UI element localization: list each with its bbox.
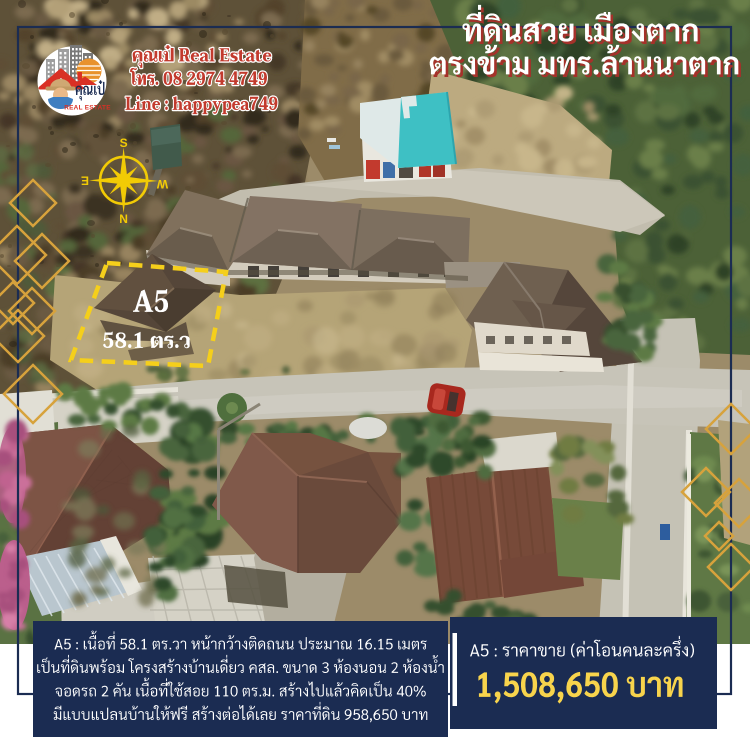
svg-text:E: E xyxy=(81,174,89,188)
svg-text:REAL ESTATE: REAL ESTATE xyxy=(64,105,111,112)
svg-text:W: W xyxy=(156,177,168,191)
svg-text:S: S xyxy=(120,136,128,150)
svg-text:N: N xyxy=(119,212,128,226)
